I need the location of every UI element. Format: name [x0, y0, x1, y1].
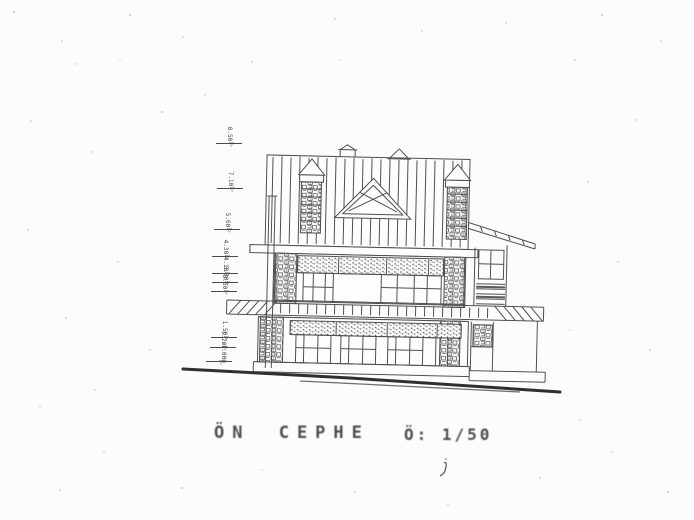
level-value: 5.60: [224, 213, 230, 227]
drawing-caption: ÖN CEPHE Ö: 1/50: [0, 423, 694, 453]
level-marker: 5.60 ▽: [210, 220, 252, 236]
ground-line: [183, 369, 560, 392]
caption-scale-label: Ö: 1/50: [404, 425, 492, 444]
level-triangle-icon: ▽: [219, 360, 224, 366]
level-value: 7.10: [227, 172, 233, 186]
lower-floor: [257, 317, 468, 367]
right-bay: [465, 223, 539, 373]
base-plinth: [253, 362, 545, 383]
level-triangle-icon: ▽: [229, 142, 234, 148]
level-value: 4.30: [222, 240, 228, 254]
level-marker: 7.10 ▽: [213, 179, 255, 195]
level-marker: -1.000 ▽: [202, 352, 244, 368]
handwritten-mark: [440, 458, 447, 476]
level-value: 3.50: [221, 275, 227, 289]
level-marker: 8.50 ▽: [212, 134, 254, 150]
upper-floor: [274, 253, 466, 307]
level-triangle-icon: ▽: [224, 290, 229, 296]
caption-title: ÖN CEPHE: [214, 423, 370, 443]
ridge-vent: [338, 145, 357, 157]
level-triangle-icon: ▽: [227, 228, 232, 234]
level-triangle-icon: ▽: [230, 187, 235, 193]
level-value: 8.50: [226, 127, 232, 141]
scanned-page: 8.50 ▽ 7.10 ▽ 5.60 ▽ 4.30 ▽ 4.10 ▽ 3.80 …: [0, 0, 694, 520]
level-marker: 3.50 ▽: [207, 282, 249, 298]
